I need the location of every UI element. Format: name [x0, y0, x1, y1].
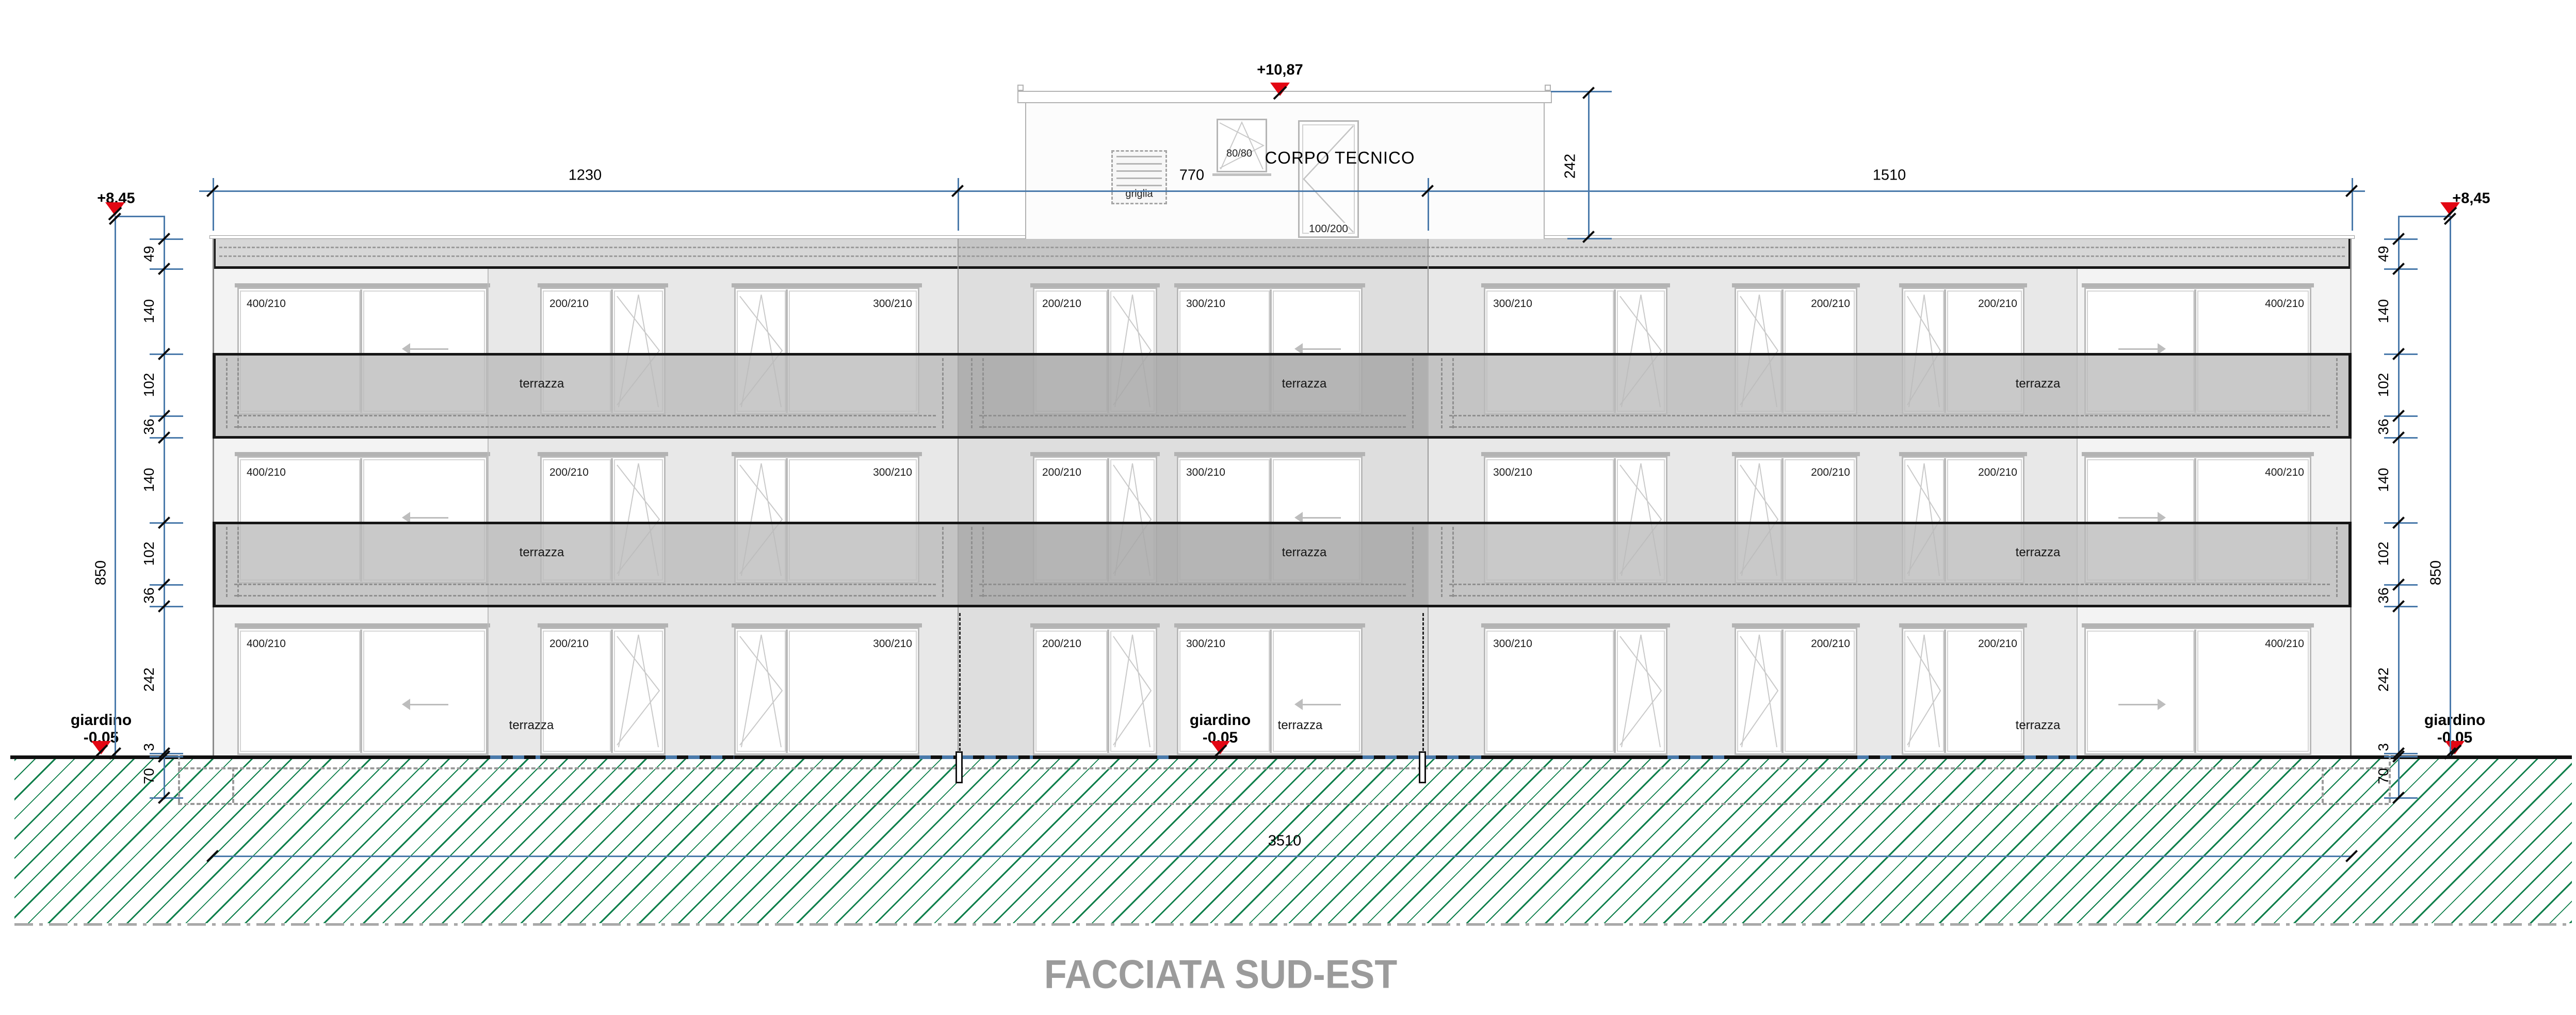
- terrace-paving-dash: [490, 755, 540, 759]
- window-head-cap: [1030, 452, 1160, 456]
- tilt-turn-glyph: [1906, 633, 1942, 748]
- wing-joint-line: [1428, 239, 1429, 755]
- window-pane: [737, 631, 786, 752]
- dim-line-overall-height-right: [2450, 216, 2451, 755]
- window-head-cap: [1732, 452, 1860, 456]
- tilt-turn-glyph: [616, 633, 661, 748]
- terrace-band-dash-post: [2336, 358, 2338, 428]
- terrace-band-dash-post: [1412, 527, 1414, 597]
- terrace-band-dash-line: [1449, 426, 2330, 428]
- arrow-shaft: [1302, 517, 1341, 519]
- dim-label-floor: 102: [141, 373, 157, 397]
- terrace-label: terrazza: [2016, 545, 2061, 560]
- window-size-label: 200/210: [1042, 298, 1081, 310]
- window-size-label: 300/210: [873, 466, 912, 479]
- dim-line-floor-stack-right: [2398, 216, 2400, 799]
- dim-line-total-width: [213, 856, 2352, 857]
- window-mullion: [1614, 630, 1616, 753]
- window-size-label: 300/210: [1493, 466, 1532, 479]
- roof-band-dash-line: [219, 255, 2345, 257]
- dim-extension-line: [150, 415, 183, 417]
- window-head-cap: [538, 283, 668, 287]
- grille-slat: [1116, 178, 1162, 179]
- terrace-band-endcap: [2348, 354, 2352, 438]
- tilt-turn-glyph: [739, 633, 784, 748]
- tilt-turn-glyph: [1619, 633, 1663, 748]
- corpo-door-label: 100/200: [1309, 223, 1348, 235]
- dim-extension-line: [2384, 756, 2418, 758]
- dim-extension-line: [150, 353, 183, 355]
- window-200x210: 200/210: [1902, 627, 2024, 755]
- terrace-label: terrazza: [1282, 545, 1327, 560]
- terrace-paving-dash: [2024, 755, 2077, 759]
- arrow-shaft: [409, 517, 448, 519]
- terrace-band: [213, 354, 958, 438]
- terrace-band-dash-line: [979, 584, 1406, 585]
- dim-label-width: 770: [1179, 167, 1204, 184]
- window-head-cap: [1732, 283, 1860, 287]
- window-size-label: 200/210: [1978, 638, 2017, 650]
- dim-extension-line: [150, 238, 183, 240]
- tilt-turn-glyph: [1218, 120, 1266, 171]
- dim-label-floor: 49: [2375, 246, 2392, 262]
- terrace-label: terrazza: [520, 377, 564, 391]
- dim-label-floor: 36: [141, 418, 157, 434]
- arrow-shaft: [1302, 704, 1341, 705]
- terrace-paving-dash: [1857, 755, 1902, 759]
- ground-line: [10, 755, 2572, 759]
- window-pane: [1617, 631, 1665, 752]
- window-pane: [1737, 631, 1781, 752]
- window-mullion: [1781, 630, 1784, 753]
- terrace-band-endcap: [2348, 523, 2352, 606]
- terrace-band-dash-post: [1412, 358, 1414, 428]
- terrace-band-dash-post: [971, 527, 973, 597]
- facade-plane-line: [488, 269, 489, 755]
- window-200x210: 200/210: [1033, 627, 1157, 755]
- dim-label-floor: 3: [141, 743, 157, 751]
- dim-line-overall-height-left: [115, 216, 116, 755]
- dim-extension-line: [115, 216, 164, 217]
- expansion-joint-box: [955, 751, 963, 783]
- roof-band: [958, 239, 1428, 269]
- dim-extension-line: [150, 522, 183, 524]
- terrace-band-dash-line: [1449, 584, 2330, 585]
- window-size-label: 300/210: [1493, 298, 1532, 310]
- dim-label-floor: 140: [2375, 299, 2392, 324]
- dim-extension-line: [150, 797, 183, 799]
- window-size-label: 300/210: [1186, 298, 1225, 310]
- terrace-label: terrazza: [2016, 377, 2061, 391]
- window-mullion: [1270, 630, 1272, 753]
- window-head-cap: [1481, 452, 1670, 456]
- dim-label-floor: 3: [2375, 743, 2392, 751]
- terrace-label: terrazza: [1278, 718, 1323, 733]
- window-size-label: 400/210: [2265, 298, 2304, 310]
- window-size-label: 200/210: [1042, 638, 1081, 650]
- dim-label-width: 1510: [1873, 167, 1906, 184]
- dim-extension-line: [150, 584, 183, 586]
- terrace-band-dash-post: [1452, 527, 1454, 597]
- grille-slat: [1116, 185, 1162, 186]
- terrace-band-dash-post: [971, 358, 973, 428]
- window-size-label: 200/210: [1811, 466, 1850, 479]
- window-pane: [614, 631, 663, 752]
- dim-extension-line: [2384, 606, 2418, 607]
- terrace-band-dash-line: [979, 415, 1406, 416]
- drawing-title: FACCIATA SUD-EST: [1044, 951, 1397, 998]
- arrow-shaft: [409, 704, 448, 705]
- window-size-label: 300/210: [1186, 638, 1225, 650]
- dim-extension-line: [2352, 178, 2353, 231]
- dim-label-floor: 140: [141, 468, 157, 492]
- dim-extension-line: [150, 756, 183, 758]
- facade-plane-line: [2077, 269, 2078, 755]
- window-400x210: 400/210: [2084, 627, 2311, 755]
- window-size-label: 300/210: [1186, 466, 1225, 479]
- window-head-cap: [1174, 283, 1365, 287]
- ground-hatch-bottom-line: [14, 923, 2572, 926]
- dim-extension-line: [958, 178, 959, 231]
- roof-band: [1428, 239, 2352, 269]
- dim-label-floor: 70: [2375, 768, 2392, 784]
- foundation-dash-line: [178, 803, 2389, 805]
- terrace-band: [1428, 523, 2352, 606]
- expansion-joint-box: [1419, 751, 1426, 783]
- garden-label: giardino: [2424, 712, 2485, 729]
- terrace-band-dash-line: [979, 595, 1406, 597]
- terrace-band-dash-line: [234, 584, 936, 585]
- window-mullion: [611, 630, 613, 753]
- dim-extension-line: [150, 437, 183, 439]
- roof-band: [213, 239, 958, 269]
- foundation-dash-line: [178, 767, 2389, 769]
- terrace-paving-dash: [1424, 755, 1484, 759]
- window-300x210: 300/210: [734, 627, 919, 755]
- window-size-label: 400/210: [2265, 638, 2304, 650]
- corpo-window-80x80: [1217, 119, 1267, 172]
- grille-label: griglia: [1125, 188, 1153, 200]
- window-head-cap: [1899, 283, 2027, 287]
- dim-line-corpo-height: [1588, 91, 1590, 239]
- terrace-slab-bottom-line: [213, 605, 2352, 607]
- window-head-cap: [1174, 452, 1365, 456]
- terrace-slab-top-line: [213, 522, 2352, 524]
- dim-extension-line: [2384, 522, 2418, 524]
- window-head-cap: [1481, 283, 1670, 287]
- roof-band-dash-line: [219, 247, 2345, 248]
- dim-line-top-widths: [199, 190, 2365, 192]
- window-head-cap: [1030, 283, 1160, 287]
- terrace-band-dash-post: [226, 358, 228, 428]
- terrace-label: terrazza: [2016, 718, 2061, 733]
- window-pane: [1904, 631, 1944, 752]
- arrow-head: [1294, 699, 1303, 710]
- terrace-band-endcap: [213, 354, 216, 438]
- dim-extension-line: [213, 178, 214, 231]
- dim-label-width: 1230: [569, 167, 602, 184]
- window-300x210: 300/210: [1484, 627, 1667, 755]
- terrace-band-dash-line: [979, 426, 1406, 428]
- window-size-label: 200/210: [1811, 638, 1850, 650]
- window-mullion: [360, 630, 362, 753]
- window-size-label: 300/210: [1493, 638, 1532, 650]
- dim-label-floor: 70: [141, 768, 157, 784]
- building-edge-right: [2350, 239, 2352, 755]
- terrace-band-dash-post: [1441, 358, 1443, 428]
- dim-extension-line: [2384, 415, 2418, 417]
- window-400x210: 400/210: [237, 627, 488, 755]
- window-pane: [2087, 631, 2194, 752]
- arrow-head: [2158, 699, 2166, 710]
- window-head-cap: [2082, 283, 2314, 287]
- dim-label-floor: 36: [2375, 418, 2392, 434]
- window-size-label: 300/210: [873, 298, 912, 310]
- window-pane: [1110, 631, 1155, 752]
- terrace-paving-dash: [919, 755, 957, 759]
- window-size-label: 400/210: [247, 638, 286, 650]
- arrow-head: [402, 699, 410, 710]
- corpo-roof-cap-nub: [1545, 85, 1551, 91]
- terrace-band-dash-line: [1449, 595, 2330, 597]
- grille-slat: [1116, 163, 1162, 165]
- terrace-band-dash-post: [982, 358, 984, 428]
- window-pane: [1273, 631, 1360, 752]
- terrace-label: terrazza: [1282, 377, 1327, 391]
- corpo-window-label: 80/80: [1226, 148, 1252, 160]
- slide-arrow-right: [2118, 699, 2165, 710]
- terrace-band: [1428, 354, 2352, 438]
- terrace-band: [213, 523, 958, 606]
- corpo-tecnico-label: CORPO TECNICO: [1265, 148, 1415, 168]
- roof-level-text: +10,87: [1257, 62, 1303, 79]
- expansion-joint-dash: [959, 613, 961, 755]
- terrace-band-dash-post: [237, 527, 239, 597]
- wing-joint-line: [958, 239, 959, 755]
- arrow-shaft: [2118, 704, 2158, 705]
- window-size-label: 300/210: [873, 638, 912, 650]
- dim-extension-line: [1567, 238, 1612, 239]
- window-200x210: 200/210: [1735, 627, 1857, 755]
- dim-label-floor: 36: [141, 587, 157, 603]
- window-size-label: 200/210: [1978, 298, 2017, 310]
- dim-label-overall-height: 850: [93, 560, 110, 585]
- window-size-label: 200/210: [1811, 298, 1850, 310]
- window-head-cap: [2082, 623, 2314, 627]
- roof-band-bottom-line: [213, 266, 2352, 269]
- terrace-paving-dash: [666, 755, 734, 759]
- grille-slat: [1116, 170, 1162, 172]
- window-mullion: [2194, 630, 2196, 753]
- terrace-paving-dash: [1363, 755, 1420, 759]
- terrace-band-dash-post: [942, 358, 944, 428]
- terrace-band-dash-line: [234, 595, 936, 597]
- foundation-dash-step: [232, 767, 234, 803]
- dim-extension-line: [2398, 216, 2450, 217]
- foundation-dash-step: [2322, 767, 2324, 803]
- expansion-joint-dash: [1422, 613, 1424, 755]
- window-head-cap: [732, 623, 922, 627]
- dim-extension-line: [2384, 268, 2418, 270]
- tilt-turn-glyph: [1739, 633, 1779, 748]
- window-head-cap: [235, 452, 490, 456]
- window-size-label: 200/210: [549, 466, 589, 479]
- window-head-cap: [1732, 623, 1860, 627]
- dim-label-floor: 102: [141, 542, 157, 566]
- window-head-cap: [732, 452, 922, 456]
- corpo-roof-cap-nub: [1017, 85, 1024, 91]
- dim-label-floor: 49: [141, 246, 157, 262]
- dim-label-floor: 140: [2375, 468, 2392, 492]
- dim-label-floor: 242: [2375, 668, 2392, 692]
- window-head-cap: [1174, 623, 1365, 627]
- dim-extension-line: [2384, 353, 2418, 355]
- garden-label: giardino: [1190, 712, 1251, 729]
- window-head-cap: [2082, 452, 2314, 456]
- window-mullion: [1107, 630, 1109, 753]
- dim-label-corpo-height: 242: [1562, 154, 1579, 179]
- dim-label-total-width: 3510: [1268, 833, 1302, 850]
- window-mullion: [1944, 630, 1946, 753]
- window-size-label: 200/210: [1042, 466, 1081, 479]
- terrace-band-dash-post: [237, 358, 239, 428]
- terrace-paving-dash: [1157, 755, 1177, 759]
- building-edge-left: [213, 239, 214, 755]
- dim-extension-line: [2384, 584, 2418, 586]
- terrace-paving-dash: [1667, 755, 1735, 759]
- terrace-band-dash-post: [2336, 527, 2338, 597]
- window-head-cap: [235, 623, 490, 627]
- window-head-cap: [538, 623, 668, 627]
- terrace-band: [958, 523, 1428, 606]
- terrace-band-dash-post: [1452, 358, 1454, 428]
- door-swing-glyph: [1300, 122, 1357, 236]
- window-size-label: 200/210: [549, 298, 589, 310]
- window-size-label: 200/210: [1978, 466, 2017, 479]
- window-head-cap: [1899, 452, 2027, 456]
- terrace-slab-bottom-line: [213, 436, 2352, 439]
- garden-label: giardino: [71, 712, 132, 729]
- terrace-band: [958, 354, 1428, 438]
- arrow-shaft: [2118, 517, 2158, 519]
- window-size-label: 400/210: [247, 298, 286, 310]
- corpo-window-sill: [1212, 173, 1271, 176]
- window-head-cap: [1481, 623, 1670, 627]
- terrace-band-dash-post: [982, 527, 984, 597]
- arrow-shaft: [409, 348, 448, 350]
- facade-elevation-drawing: FACCIATA SUD-EST griglia80/80100/200CORP…: [0, 0, 2576, 1015]
- window-pane: [363, 631, 485, 752]
- terrace-label: terrazza: [520, 545, 564, 560]
- tilt-turn-glyph: [1112, 633, 1153, 748]
- slide-arrow-left: [402, 699, 448, 710]
- terrace-slab-top-line: [213, 353, 2352, 356]
- dim-extension-line: [2384, 797, 2418, 799]
- terrace-band-dash-line: [1449, 415, 2330, 416]
- terrace-label: terrazza: [509, 718, 554, 733]
- arrow-shaft: [1302, 348, 1341, 350]
- dim-extension-line: [1428, 178, 1429, 231]
- terrace-paving-dash: [962, 755, 1033, 759]
- window-size-label: 400/210: [2265, 466, 2304, 479]
- dim-label-floor: 140: [141, 299, 157, 324]
- window-mullion: [786, 630, 788, 753]
- dim-extension-line: [2384, 238, 2418, 240]
- window-head-cap: [235, 283, 490, 287]
- window-size-label: 200/210: [549, 638, 589, 650]
- dim-extension-line: [150, 606, 183, 607]
- window-head-cap: [538, 452, 668, 456]
- dim-label-floor: 102: [2375, 542, 2392, 566]
- corpo-door-100x200: [1298, 120, 1359, 238]
- dim-line-floor-stack-left: [164, 216, 165, 799]
- dim-label-floor: 36: [2375, 587, 2392, 603]
- slide-arrow-left: [1294, 699, 1341, 710]
- terrace-band-endcap: [213, 523, 216, 606]
- dim-label-floor: 102: [2375, 373, 2392, 397]
- dim-label-floor: 242: [141, 668, 157, 692]
- window-size-label: 400/210: [247, 466, 286, 479]
- terrace-band-dash-post: [226, 527, 228, 597]
- dim-extension-line: [2384, 437, 2418, 439]
- window-200x210: 200/210: [540, 627, 666, 755]
- terrace-band-dash-post: [942, 527, 944, 597]
- window-head-cap: [1030, 623, 1160, 627]
- foundation-dash-edge: [178, 755, 180, 803]
- dim-extension-line: [150, 268, 183, 270]
- corpo-tecnico-body: [1025, 103, 1545, 239]
- dim-extension-line: [1551, 91, 1612, 92]
- terrace-band-dash-line: [234, 426, 936, 428]
- window-head-cap: [1899, 623, 2027, 627]
- grille-slat: [1116, 156, 1162, 157]
- terrace-band-dash-post: [1441, 527, 1443, 597]
- terrace-band-dash-line: [234, 415, 936, 416]
- dim-label-overall-height: 850: [2428, 560, 2445, 585]
- window-head-cap: [732, 283, 922, 287]
- arrow-shaft: [2118, 348, 2158, 350]
